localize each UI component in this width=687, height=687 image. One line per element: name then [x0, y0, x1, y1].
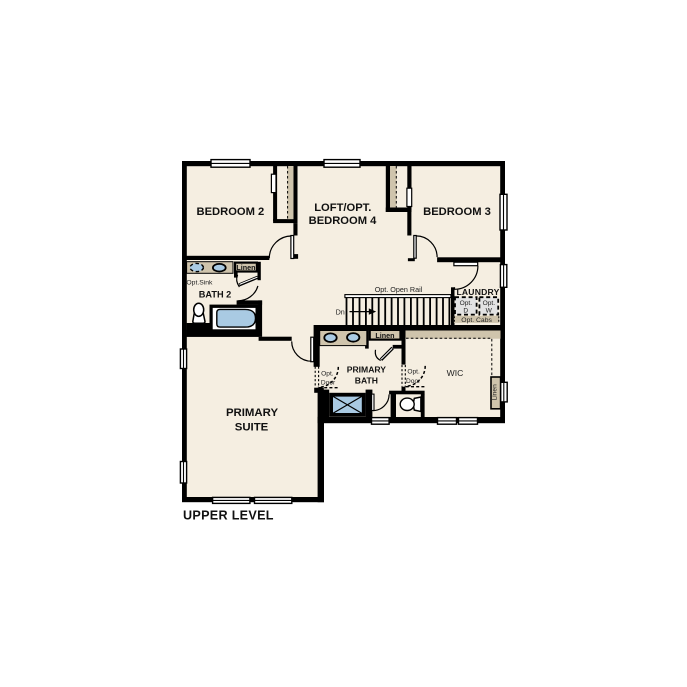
svg-text:D: D [463, 308, 468, 315]
svg-text:Opt.: Opt. [321, 371, 334, 378]
svg-text:LOFT/OPT.: LOFT/OPT. [314, 202, 371, 214]
svg-text:Opt.: Opt. [483, 300, 496, 307]
svg-text:Opt.: Opt. [407, 369, 420, 376]
svg-text:Opt. Cabs: Opt. Cabs [461, 317, 492, 324]
svg-text:BEDROOM 2: BEDROOM 2 [197, 206, 265, 218]
svg-text:LAUNDRY: LAUNDRY [456, 287, 499, 297]
svg-text:Opt.Sink: Opt.Sink [186, 279, 213, 286]
svg-text:W: W [486, 308, 493, 315]
svg-text:Dn: Dn [336, 307, 345, 316]
svg-text:Opt.: Opt. [460, 300, 473, 307]
svg-text:Opt. Open Rail: Opt. Open Rail [375, 285, 423, 294]
svg-text:Linen: Linen [236, 263, 255, 272]
svg-text:SUITE: SUITE [235, 422, 269, 434]
svg-text:Door: Door [321, 379, 336, 386]
svg-text:WIC: WIC [447, 368, 464, 378]
svg-text:Linen: Linen [492, 384, 499, 400]
svg-text:BEDROOM 4: BEDROOM 4 [309, 215, 378, 227]
svg-text:BATH 2: BATH 2 [199, 290, 232, 300]
svg-text:UPPER LEVEL: UPPER LEVEL [183, 509, 274, 523]
svg-text:PRIMARY: PRIMARY [347, 365, 387, 375]
svg-text:BEDROOM 3: BEDROOM 3 [423, 206, 491, 218]
svg-text:Door: Door [406, 378, 421, 385]
svg-text:Linen: Linen [375, 331, 394, 340]
svg-text:BATH: BATH [355, 376, 378, 386]
svg-text:PRIMARY: PRIMARY [226, 407, 279, 419]
